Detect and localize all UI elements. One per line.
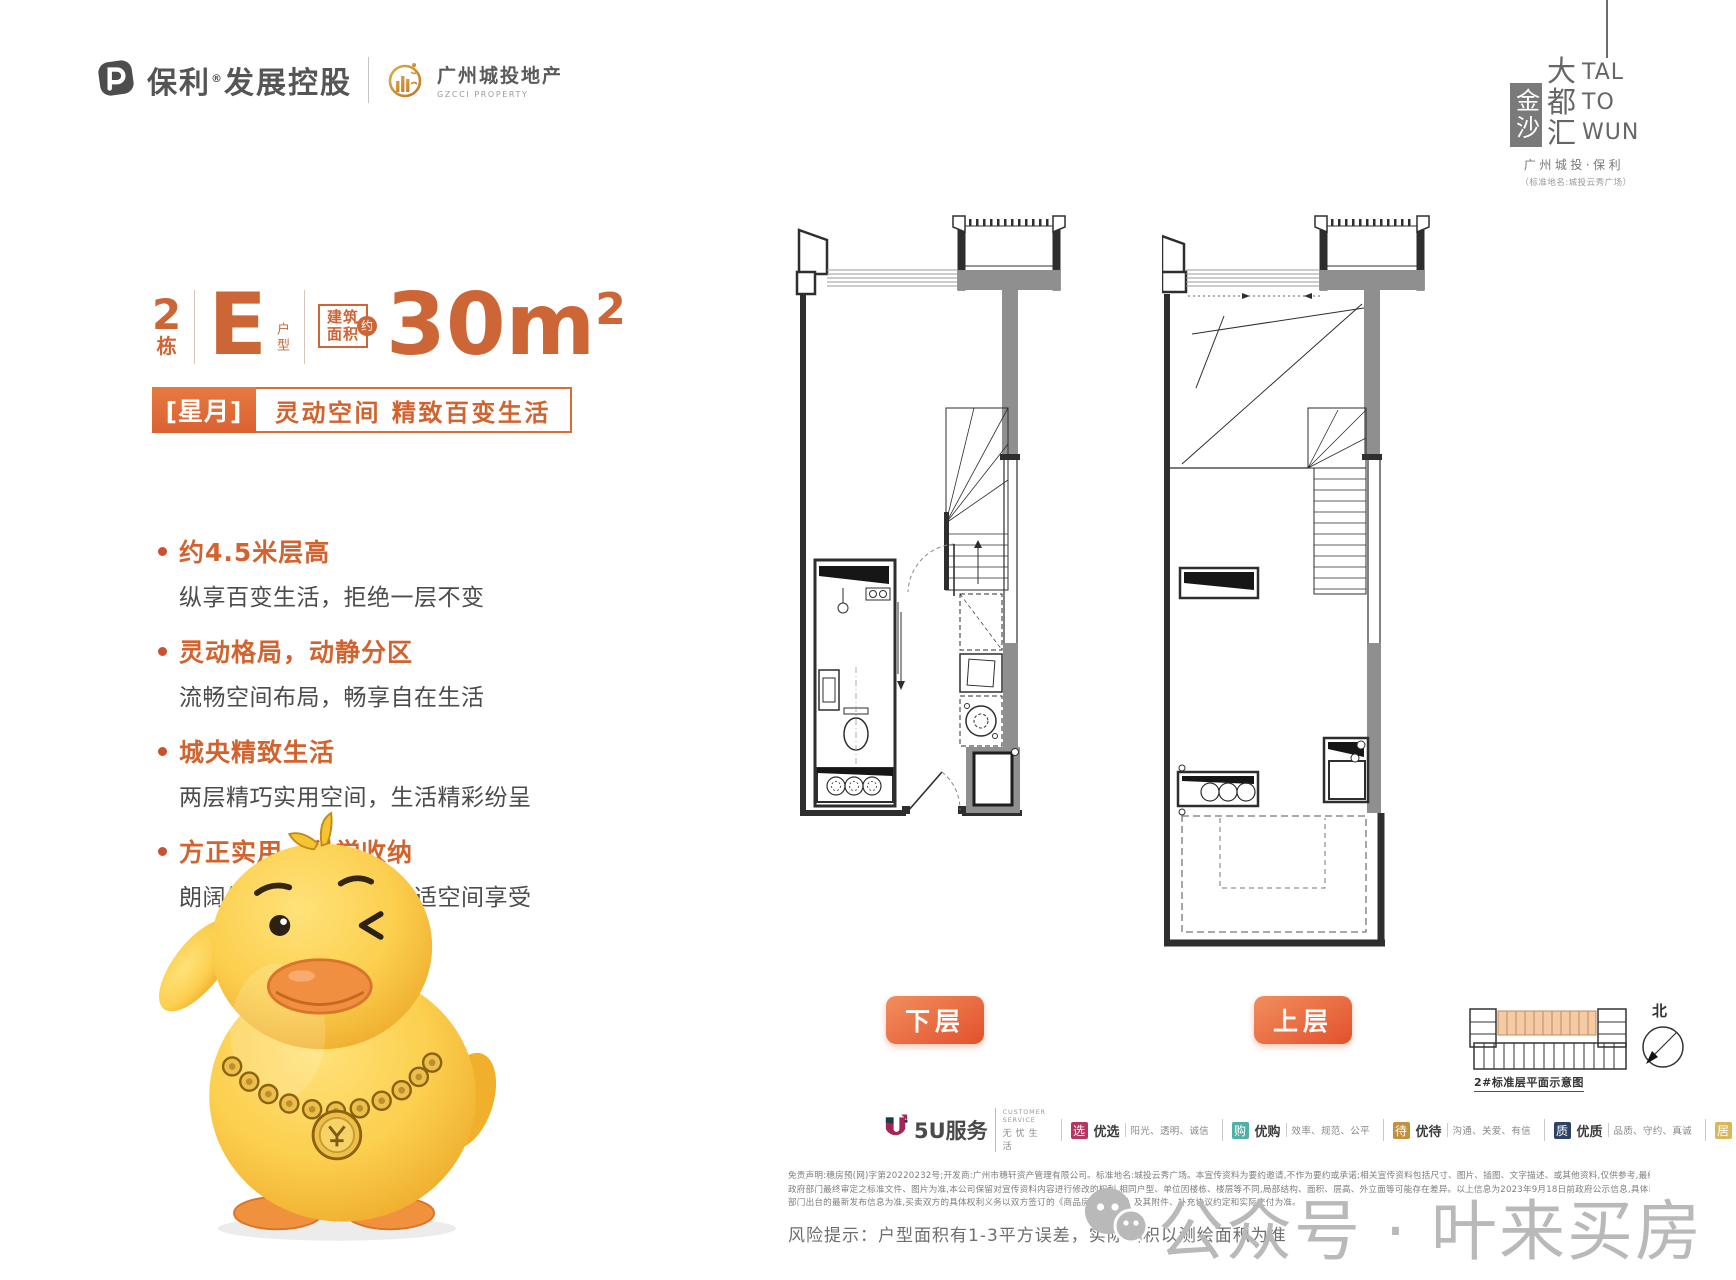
service-icon-quality: 质 [1554,1122,1571,1139]
wechat-icon [1082,1186,1148,1252]
unit-type-label: 户型 [272,322,291,354]
approx-circle: 约 [357,316,377,336]
service-divider [1544,1119,1545,1141]
service-desc: 沟通、关爱、有信 [1447,1123,1531,1137]
project-seal: 金沙 [1510,83,1542,147]
project-byline: 广州城投·保利 [1510,156,1638,173]
feature-desc: 纵享百变生活，拒绝一层不变 [179,578,588,612]
brand-row: 保利®发展控股 广州城投地产 GZCCI PROPERTY [95,56,563,104]
north-label: 北 [1652,1000,1667,1021]
service-label: 优购 [1255,1121,1281,1140]
watermark-text: 公众号 · 叶来买房 [1158,1186,1703,1278]
service-item: 选 优选 阳光、透明、诚信 [1071,1121,1209,1140]
poly-brand-name: 保利®发展控股 [147,58,352,102]
service-item: 质 优质 品质、守约、真诚 [1554,1121,1692,1140]
feature-item: 灵动格局，动静分区 流畅空间布局，畅享自在生活 [158,633,588,712]
area-badge: 建筑 面积 约 [318,304,368,348]
tagline-tag: [星月] [152,387,256,433]
unit-type-letter: E [208,288,267,362]
floor-plan-lower [788,212,1066,962]
service-item: 居 优居 和睦、关怀、亲情 [1715,1121,1736,1140]
bullet-dot-icon [158,647,167,656]
feature-title: 灵动格局，动静分区 [179,633,413,669]
building-number: 2 栋 [152,296,181,358]
brand-divider [368,57,369,103]
project-standard-name: （标准地名:城投云秀广场） [1510,176,1642,188]
upper-floor-button[interactable]: 上层 [1254,996,1352,1044]
feature-item: 约4.5米层高 纵享百变生活，拒绝一层不变 [158,533,588,612]
project-name-vertical: 大 都 汇 [1547,56,1576,149]
partner-brand: 广州城投地产 GZCCI PROPERTY [385,56,563,104]
disclaimer-line: 免责声明:穗房预(网)字第20220232号;开发商:广州市穗轩资产管理有限公司… [788,1170,1650,1184]
wechat-watermark: 公众号 · 叶来买房 [1082,1186,1703,1278]
service-icon-care: 待 [1393,1122,1410,1139]
tagline-banner: [星月] 灵动空间 精致百变生活 [152,387,572,433]
poly-logo-icon [95,57,137,103]
service-icon-live: 居 [1715,1122,1732,1139]
area-value: 30m2 [386,288,626,377]
5u-logo-icon [882,1113,909,1147]
unit-headline: 2 栋 E 户型 建筑 面积 约 30m2 [152,288,626,377]
project-name-latin: TAL TO WUN [1582,58,1639,149]
keyplan-caption: 2#标准层平面示意图 [1474,1074,1584,1092]
keyplan-diagram [1468,995,1638,1073]
feature-title: 城央精致生活 [179,733,335,769]
service-desc: 阳光、透明、诚信 [1125,1123,1209,1137]
bullet-dot-icon [158,747,167,756]
gzcci-logo-icon [385,56,429,104]
poster-page: 保利®发展控股 广州城投地产 GZCCI PROPERTY [0,0,1736,1280]
service-divider [1061,1119,1062,1141]
service-divider [1383,1119,1384,1141]
service-label: 优待 [1416,1121,1442,1140]
service-icon-buy: 购 [1232,1122,1249,1139]
feature-desc: 流畅空间布局，畅享自在生活 [179,678,588,712]
tagline-text: 灵动空间 精致百变生活 [256,387,572,433]
north-compass-icon [1638,1020,1688,1072]
service-icon-select: 选 [1071,1122,1088,1139]
service-desc: 效率、规范、公平 [1286,1123,1370,1137]
floor-plan-upper [1162,212,1440,962]
feature-title: 约4.5米层高 [179,533,330,569]
service-label: 优质 [1577,1121,1603,1140]
duck-mascot-illustration [135,775,535,1255]
service-item: 待 优待 沟通、关爱、有信 [1393,1121,1531,1140]
service-caption: CUSTOMER SERVICE 无忧生活 [995,1108,1048,1152]
headline-divider [194,290,195,364]
partner-name: 广州城投地产 [437,61,563,88]
project-logo-line [1606,0,1608,58]
service-item: 购 优购 效率、规范、公平 [1232,1121,1370,1140]
project-logo: 金沙 大 都 汇 TAL TO WUN 广州城投·保利 （标准地名:城投云秀广场… [1510,56,1650,188]
service-divider [1222,1119,1223,1141]
lower-floor-button[interactable]: 下层 [886,996,984,1044]
service-row: 5U服务 CUSTOMER SERVICE 无忧生活 选 优选 阳光、透明、诚信… [882,1112,1736,1148]
bullet-dot-icon [158,547,167,556]
service-logo-text: 5U服务 [914,1115,988,1145]
service-label: 优选 [1094,1121,1120,1140]
partner-subtitle: GZCCI PROPERTY [437,90,563,99]
service-desc: 品质、守约、真诚 [1608,1123,1692,1137]
service-divider [1705,1119,1706,1141]
headline-divider [304,290,305,364]
